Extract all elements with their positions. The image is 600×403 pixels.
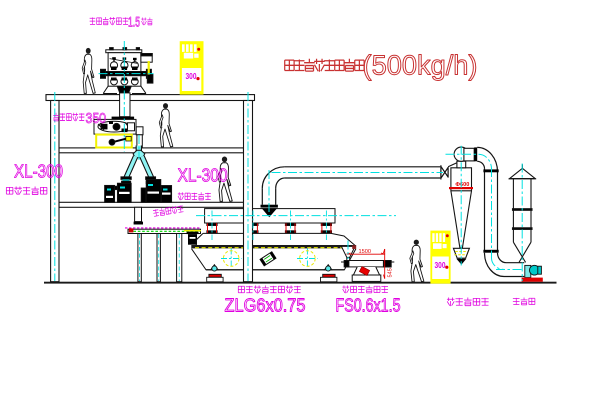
svg-text:XL-300: XL-300 xyxy=(14,161,63,182)
svg-text:545: 545 xyxy=(388,268,394,277)
svg-text:XL-300: XL-300 xyxy=(178,165,228,186)
svg-text:1.5: 1.5 xyxy=(128,15,140,30)
svg-text:1500: 1500 xyxy=(359,249,371,255)
svg-text:Φ600: Φ600 xyxy=(455,182,469,188)
svg-text:(500kg/h): (500kg/h) xyxy=(363,50,478,81)
svg-text:350: 350 xyxy=(86,111,107,127)
svg-text:300: 300 xyxy=(435,261,446,270)
svg-text:300: 300 xyxy=(186,72,197,81)
svg-text:FS0.6x1.5: FS0.6x1.5 xyxy=(336,295,401,316)
svg-text:ZLG6x0.75: ZLG6x0.75 xyxy=(225,295,306,316)
